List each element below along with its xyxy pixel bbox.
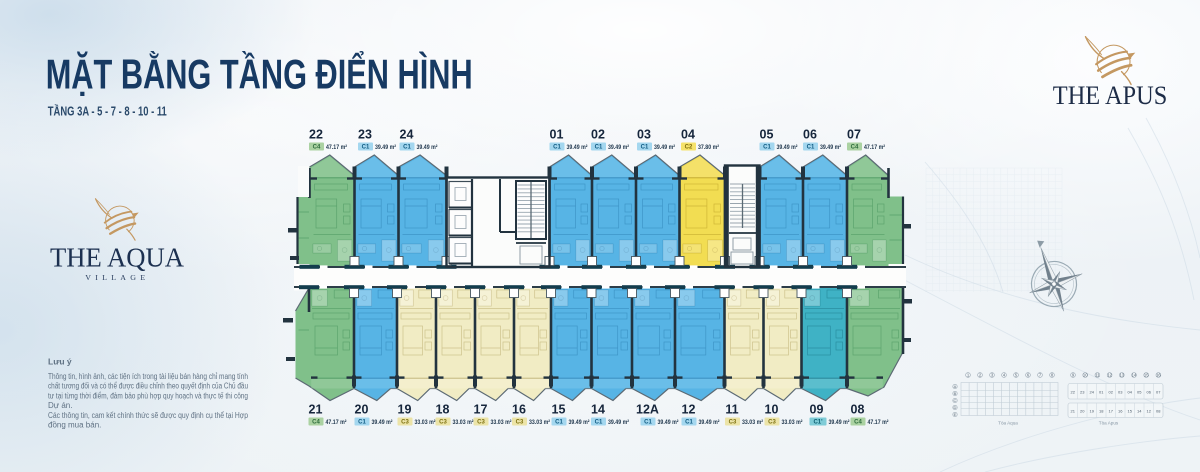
svg-text:10: 10: [765, 403, 779, 417]
svg-text:39.49 m²: 39.49 m²: [699, 419, 720, 426]
svg-text:14: 14: [591, 403, 605, 417]
svg-text:39.49 m²: 39.49 m²: [658, 419, 679, 426]
svg-text:06: 06: [803, 128, 817, 142]
svg-text:C1: C1: [807, 145, 815, 151]
svg-text:C: C: [954, 398, 957, 403]
svg-text:39.49 m²: 39.49 m²: [777, 144, 798, 151]
svg-text:11: 11: [1095, 373, 1100, 378]
svg-text:02: 02: [1108, 389, 1113, 394]
svg-text:01: 01: [550, 128, 564, 142]
svg-text:19: 19: [1089, 409, 1094, 414]
svg-text:02: 02: [591, 128, 605, 142]
svg-text:33.03 m²: 33.03 m²: [782, 419, 803, 426]
svg-text:21: 21: [1070, 409, 1075, 414]
svg-text:03: 03: [637, 128, 651, 142]
svg-text:19: 19: [398, 403, 412, 417]
svg-text:Tòa Apus: Tòa Apus: [1099, 421, 1119, 426]
svg-text:39.49 m²: 39.49 m²: [569, 419, 590, 426]
svg-text:24: 24: [400, 128, 414, 142]
svg-text:33.03 m²: 33.03 m²: [529, 419, 550, 426]
svg-text:C1: C1: [595, 420, 603, 426]
svg-text:39.49 m²: 39.49 m²: [567, 144, 588, 151]
svg-text:39.49 m²: 39.49 m²: [417, 144, 438, 151]
svg-text:C4: C4: [312, 420, 320, 426]
svg-text:23: 23: [358, 128, 372, 142]
svg-text:07: 07: [847, 128, 861, 142]
svg-text:05: 05: [760, 128, 774, 142]
svg-text:09: 09: [810, 403, 824, 417]
svg-text:C1': C1': [813, 420, 823, 426]
svg-text:01: 01: [1099, 389, 1104, 394]
svg-text:C3: C3: [729, 420, 737, 426]
svg-text:37.80 m²: 37.80 m²: [698, 144, 719, 151]
svg-text:12: 12: [1107, 373, 1112, 378]
svg-text:16: 16: [1118, 409, 1123, 414]
svg-text:13: 13: [1119, 373, 1124, 378]
svg-text:22: 22: [1070, 389, 1075, 394]
svg-text:16: 16: [1156, 373, 1161, 378]
svg-text:12: 12: [682, 403, 696, 417]
svg-text:Dự án.: Dự án.: [48, 401, 72, 410]
svg-text:A: A: [954, 384, 957, 389]
svg-text:08: 08: [851, 403, 865, 417]
svg-text:VILLAGE: VILLAGE: [85, 273, 149, 282]
svg-text:E: E: [954, 412, 957, 417]
svg-text:10: 10: [1083, 373, 1088, 378]
svg-text:14: 14: [1132, 373, 1137, 378]
svg-text:C1: C1: [763, 145, 771, 151]
svg-text:Lưu ý: Lưu ý: [48, 357, 72, 367]
svg-text:03: 03: [1118, 389, 1123, 394]
svg-text:C1: C1: [358, 420, 366, 426]
svg-text:Các thông tin, cam kết chính t: Các thông tin, cam kết chính thức sẽ đượ…: [48, 411, 248, 420]
svg-text:12A: 12A: [636, 403, 659, 417]
svg-text:C1: C1: [685, 420, 693, 426]
svg-text:47.17 m²: 47.17 m²: [326, 144, 347, 151]
svg-text:15: 15: [1144, 373, 1149, 378]
svg-text:33.03 m²: 33.03 m²: [742, 419, 763, 426]
svg-text:15: 15: [1127, 409, 1132, 414]
svg-text:C4: C4: [851, 145, 859, 151]
svg-text:chất tương đối và có thể được: chất tương đối và có thể được điều chỉnh…: [48, 382, 248, 391]
svg-text:39.49 m²: 39.49 m²: [608, 144, 629, 151]
svg-text:33.03 m²: 33.03 m²: [453, 419, 474, 426]
svg-text:C3: C3: [401, 420, 409, 426]
svg-text:22: 22: [309, 128, 323, 142]
svg-text:C1: C1: [644, 420, 652, 426]
svg-text:C3: C3: [439, 420, 447, 426]
svg-text:C1: C1: [553, 145, 561, 151]
svg-text:06: 06: [1146, 389, 1151, 394]
svg-text:17: 17: [474, 403, 488, 417]
svg-text:20: 20: [1080, 409, 1085, 414]
svg-text:21: 21: [309, 403, 323, 417]
svg-text:11: 11: [725, 403, 738, 417]
svg-text:D: D: [954, 405, 957, 410]
svg-text:47.17 m²: 47.17 m²: [868, 419, 889, 426]
svg-text:C4: C4: [854, 420, 862, 426]
svg-text:C1: C1: [362, 145, 370, 151]
svg-text:39.49 m²: 39.49 m²: [829, 419, 850, 426]
svg-text:C3: C3: [768, 420, 776, 426]
svg-text:THE AQUA: THE AQUA: [50, 243, 184, 273]
svg-text:C1: C1: [595, 145, 603, 151]
svg-text:33.03 m²: 33.03 m²: [491, 419, 512, 426]
svg-text:C2: C2: [685, 145, 693, 151]
svg-text:39.49 m²: 39.49 m²: [372, 419, 393, 426]
svg-text:TẦNG 3A - 5 - 7 - 8 - 10 - 11: TẦNG 3A - 5 - 7 - 8 - 10 - 11: [48, 104, 167, 119]
svg-text:C1: C1: [403, 145, 411, 151]
svg-text:07: 07: [1156, 389, 1161, 394]
svg-text:C4: C4: [313, 145, 321, 151]
svg-text:47.17 m²: 47.17 m²: [326, 419, 347, 426]
svg-text:39.49 m²: 39.49 m²: [654, 144, 675, 151]
svg-text:THE APUS: THE APUS: [1053, 81, 1168, 110]
svg-text:tư tại từng thời điểm, đảm bảo: tư tại từng thời điểm, đảm bảo phù hợp q…: [48, 391, 248, 400]
svg-text:20: 20: [355, 403, 369, 417]
svg-text:08: 08: [1156, 409, 1161, 414]
svg-text:B: B: [954, 391, 957, 396]
svg-text:47.17 m²: 47.17 m²: [864, 144, 885, 151]
svg-text:đồng mua bán.: đồng mua bán.: [48, 421, 101, 430]
svg-text:39.49 m²: 39.49 m²: [820, 144, 841, 151]
svg-text:15: 15: [552, 403, 566, 417]
svg-text:04: 04: [681, 128, 695, 142]
svg-text:33.03 m²: 33.03 m²: [415, 419, 436, 426]
svg-text:MẶT BẰNG TẦNG ĐIỂN HÌNH: MẶT BẰNG TẦNG ĐIỂN HÌNH: [46, 50, 473, 98]
svg-text:04: 04: [1127, 389, 1132, 394]
svg-text:12: 12: [1146, 409, 1151, 414]
svg-text:C3: C3: [516, 420, 524, 426]
svg-text:Thông tin, hình ảnh, các tiện: Thông tin, hình ảnh, các tiện ích trong …: [48, 372, 248, 381]
svg-text:39.49 m²: 39.49 m²: [608, 419, 629, 426]
svg-text:18: 18: [1099, 409, 1104, 414]
svg-text:17: 17: [1108, 409, 1113, 414]
svg-text:16: 16: [512, 403, 526, 417]
svg-text:C1: C1: [555, 420, 563, 426]
svg-text:39.49 m²: 39.49 m²: [375, 144, 396, 151]
svg-text:24: 24: [1089, 389, 1094, 394]
svg-text:14: 14: [1137, 409, 1142, 414]
svg-text:Tòa Aqua: Tòa Aqua: [998, 421, 1018, 426]
svg-text:23: 23: [1080, 389, 1085, 394]
svg-text:C1: C1: [641, 145, 649, 151]
svg-text:05: 05: [1137, 389, 1142, 394]
svg-text:C3: C3: [477, 420, 485, 426]
svg-text:18: 18: [436, 403, 450, 417]
